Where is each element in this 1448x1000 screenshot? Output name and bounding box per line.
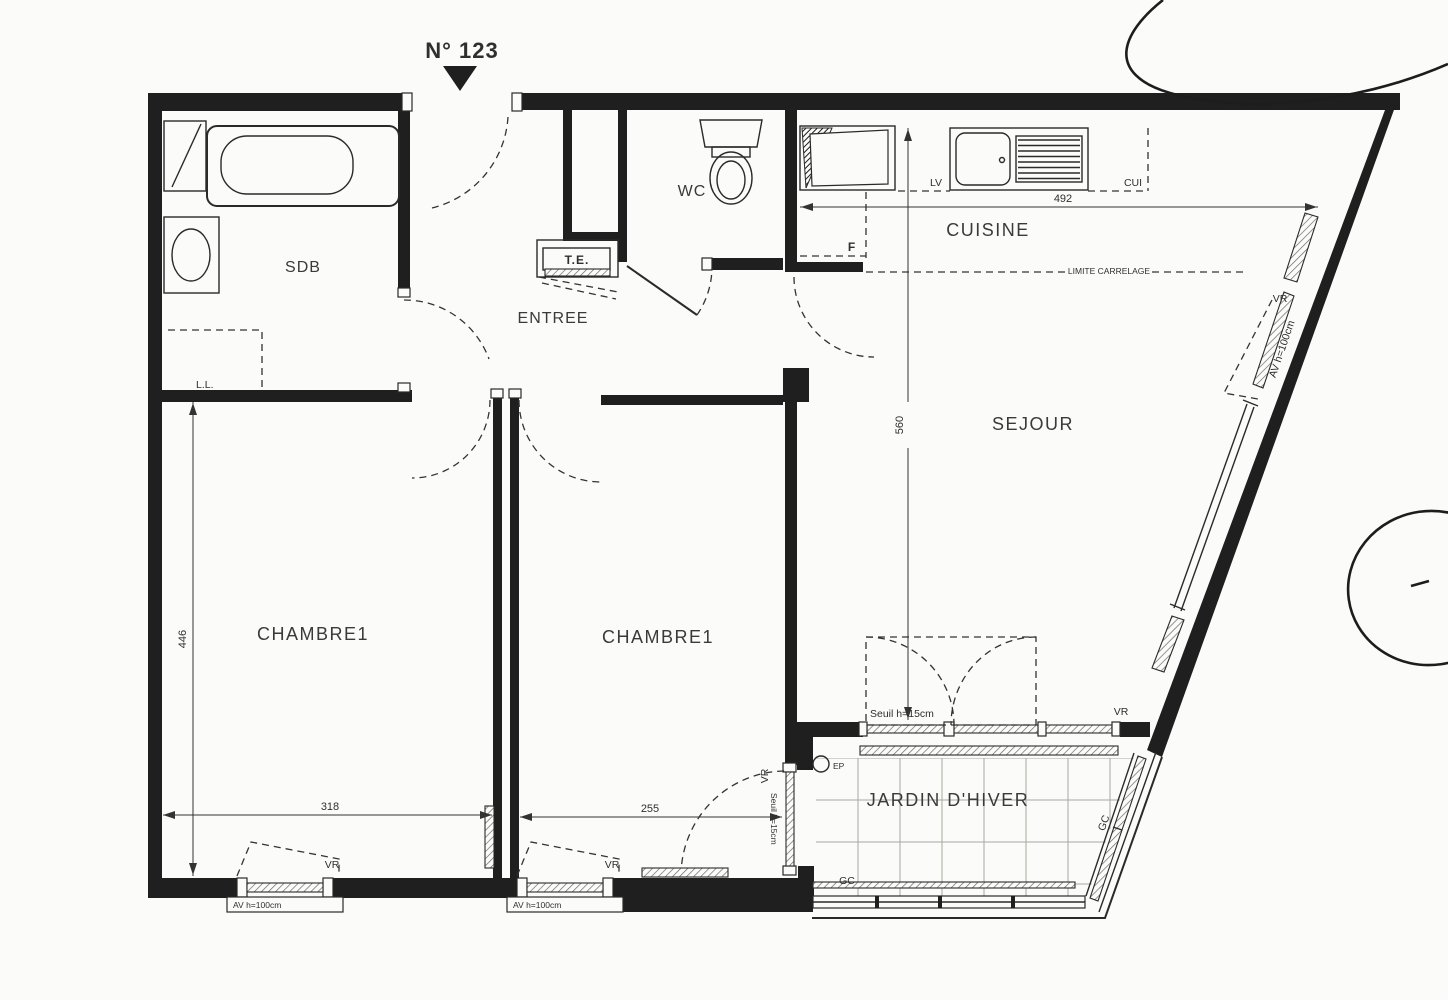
paper-background: [0, 0, 1448, 1000]
room-label-chambre2: CHAMBRE1: [602, 627, 714, 647]
exterior-sill: [860, 746, 1118, 755]
window-glazing: [527, 883, 603, 892]
window-mullion: [944, 722, 954, 736]
window-glazing: [786, 772, 794, 866]
radiator: [642, 868, 728, 877]
wall-cap: [491, 389, 503, 398]
floor-plan-page: 492 560 446 318 255 N° 123 SDB ENTREE WC…: [0, 0, 1448, 1000]
window-jamb: [517, 878, 527, 897]
window-jamb: [783, 763, 796, 772]
window-jamb: [323, 878, 333, 897]
label-ep: EP: [833, 761, 845, 771]
floor-plan-drawing: 492 560 446 318 255 N° 123 SDB ENTREE WC…: [0, 0, 1448, 1000]
room-label-sdb: SDB: [285, 259, 321, 276]
room-label-sejour: SEJOUR: [992, 414, 1074, 434]
window-jamb: [603, 878, 613, 897]
dim-chambre1-width: 318: [321, 801, 339, 813]
window-jamb: [783, 866, 796, 875]
label-vr-chambre2: VR: [759, 768, 771, 783]
door-jamb: [702, 258, 712, 270]
label-lv: LV: [930, 177, 942, 189]
label-limite-carrelage: LIMITE CARRELAGE: [1068, 266, 1151, 276]
window-jamb: [237, 878, 247, 897]
label-seuil-chambre2: Seuil h=15cm: [769, 793, 779, 845]
wall-cap: [509, 389, 521, 398]
label-av-window1: AV h=100cm: [233, 900, 281, 910]
label-vr-facade: VR: [1273, 293, 1288, 305]
dim-chambre1-depth: 446: [177, 630, 189, 648]
room-label-cuisine: CUISINE: [946, 220, 1030, 240]
label-av-window2: AV h=100cm: [513, 900, 561, 910]
dim-sejour-depth: 560: [894, 416, 906, 434]
dim-chambre2-width: 255: [641, 803, 659, 815]
room-label-jardin: JARDIN D'HIVER: [867, 790, 1029, 810]
door-jamb: [398, 383, 410, 392]
label-vr-bay: VR: [1114, 706, 1129, 718]
dim-cuisine-width: 492: [1054, 193, 1072, 205]
door-jamb: [402, 93, 412, 111]
label-te: T.E.: [565, 253, 590, 267]
label-seuil-bay: Seuil h=15cm: [870, 708, 934, 720]
label-gc-bottom: GC: [839, 875, 855, 887]
label-cui: CUI: [1124, 177, 1142, 189]
window-mullion: [1038, 722, 1046, 736]
label-vr-window2: VR: [605, 859, 620, 871]
room-label-chambre1: CHAMBRE1: [257, 624, 369, 644]
label-ll: L.L.: [196, 379, 214, 391]
door-jamb: [512, 93, 522, 111]
bay-window-glazing: [867, 725, 1112, 733]
window-jamb: [859, 722, 867, 736]
window-glazing: [247, 883, 323, 892]
label-vr-window1: VR: [325, 859, 340, 871]
label-f: F: [848, 240, 856, 254]
window-jamb: [1112, 722, 1120, 736]
door-jamb: [398, 288, 410, 297]
room-label-entree: ENTREE: [518, 310, 589, 327]
unit-number-label: N° 123: [425, 38, 499, 63]
room-label-wc: WC: [678, 183, 707, 200]
